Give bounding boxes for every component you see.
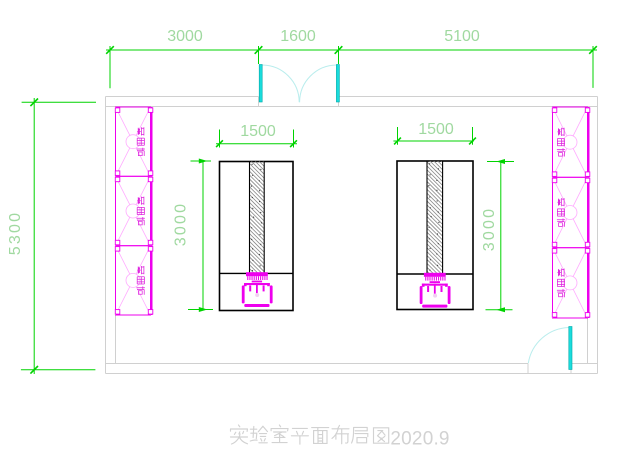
svg-text:3000: 3000 (173, 202, 190, 246)
svg-text:5100: 5100 (444, 28, 480, 45)
svg-text:1500: 1500 (240, 123, 276, 140)
svg-text:2020.9: 2020.9 (390, 429, 449, 450)
svg-text:3000: 3000 (481, 207, 498, 251)
svg-text:1500: 1500 (418, 121, 454, 138)
svg-text:5300: 5300 (7, 211, 24, 255)
svg-text:3000: 3000 (167, 28, 203, 45)
svg-text:1600: 1600 (280, 28, 316, 45)
